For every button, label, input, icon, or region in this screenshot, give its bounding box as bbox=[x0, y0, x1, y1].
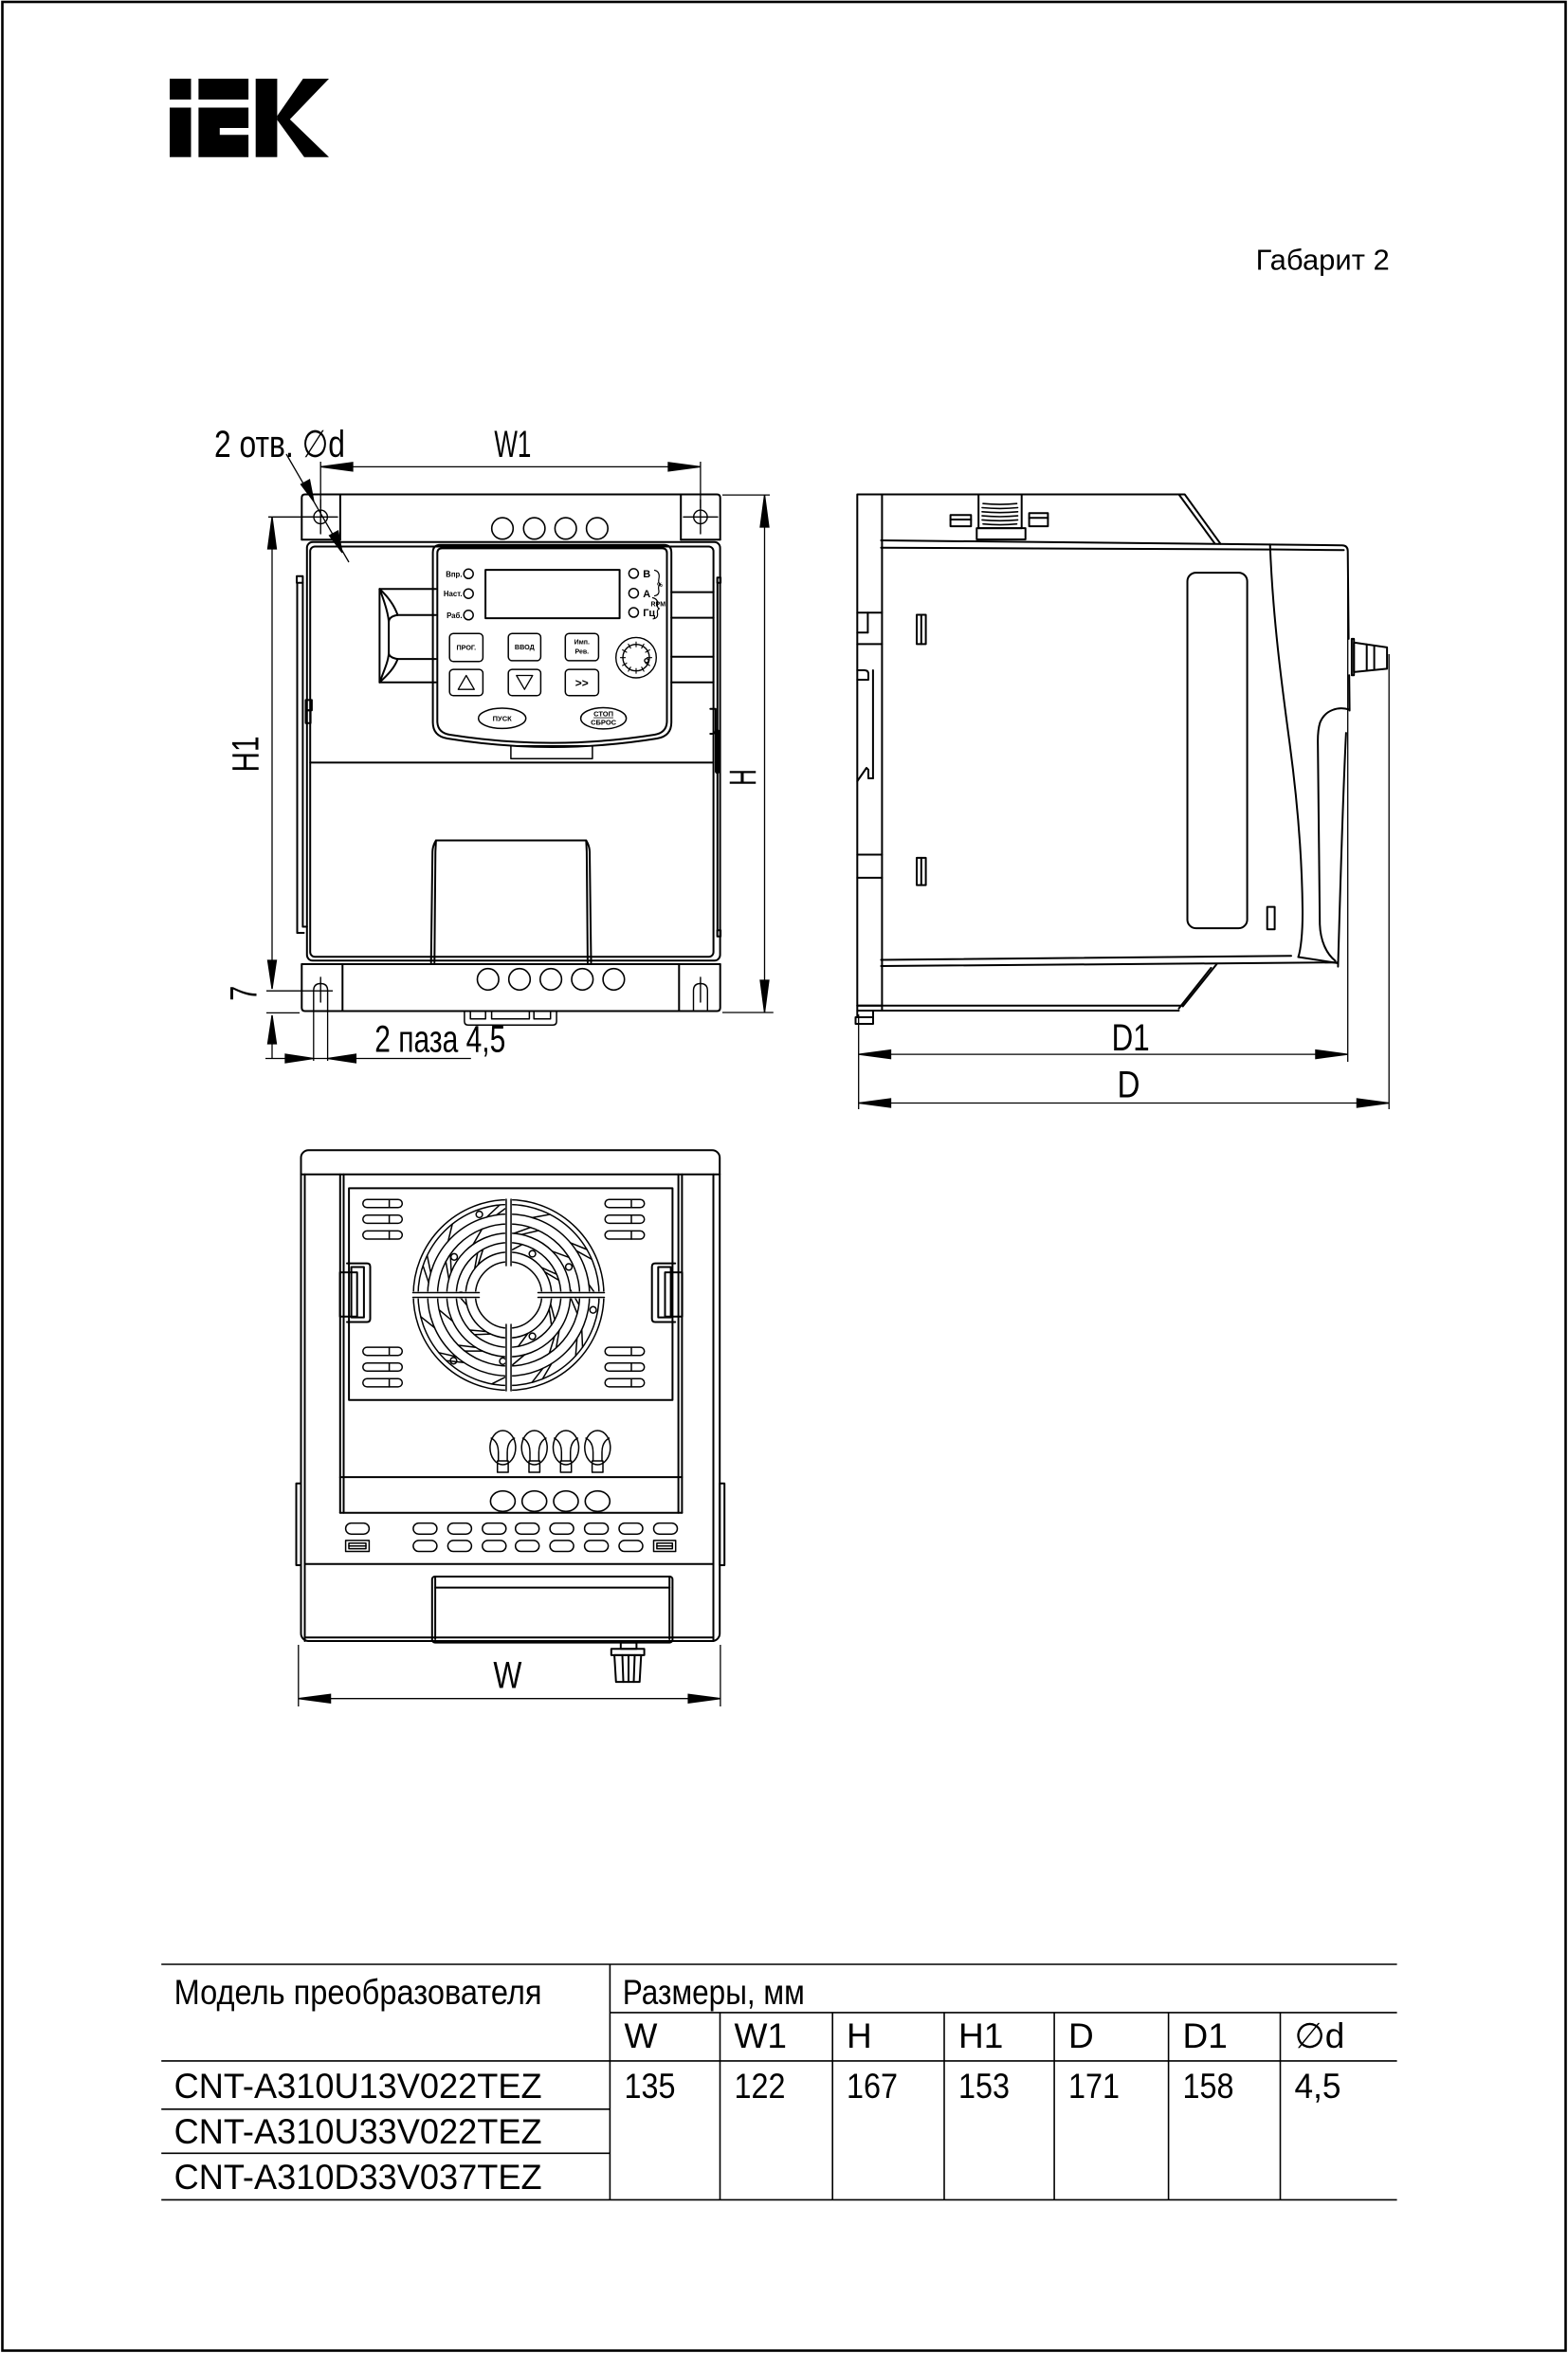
svg-text:Размеры, мм: Размеры, мм bbox=[623, 1973, 805, 2012]
svg-text:171: 171 bbox=[1068, 2067, 1120, 2106]
svg-text:W: W bbox=[493, 1655, 521, 1697]
svg-text:122: 122 bbox=[735, 2067, 786, 2106]
svg-text:∅d: ∅d bbox=[1295, 2016, 1345, 2055]
svg-text:H: H bbox=[722, 769, 764, 786]
svg-text:135: 135 bbox=[625, 2067, 676, 2106]
svg-text:D1: D1 bbox=[1112, 1017, 1150, 1059]
svg-text:2 отв. ∅d: 2 отв. ∅d bbox=[214, 424, 345, 465]
svg-text:167: 167 bbox=[847, 2067, 898, 2106]
svg-text:H1: H1 bbox=[226, 737, 267, 773]
svg-text:А: А bbox=[643, 589, 650, 600]
svg-text:ПРОГ.: ПРОГ. bbox=[456, 644, 476, 652]
svg-text:D: D bbox=[1068, 2016, 1094, 2055]
svg-text:153: 153 bbox=[958, 2067, 1010, 2106]
svg-text:В: В bbox=[643, 569, 650, 580]
svg-text:Наст.: Наст. bbox=[444, 590, 463, 598]
svg-text:%: % bbox=[657, 582, 663, 589]
svg-text:W: W bbox=[625, 2016, 658, 2055]
svg-text:D1: D1 bbox=[1183, 2016, 1228, 2055]
svg-text:H1: H1 bbox=[958, 2016, 1003, 2055]
svg-text:4,5: 4,5 bbox=[1295, 2067, 1341, 2106]
svg-text:CNT-A310U13V022TEZ: CNT-A310U13V022TEZ bbox=[174, 2067, 542, 2106]
svg-text:ВВОД: ВВОД bbox=[515, 643, 535, 651]
svg-text:7: 7 bbox=[223, 986, 264, 1001]
svg-text:Габарит 2: Габарит 2 bbox=[1256, 244, 1390, 277]
svg-text:RPM: RPM bbox=[651, 602, 666, 609]
svg-text:Рев.: Рев. bbox=[574, 648, 589, 655]
svg-text:D: D bbox=[1118, 1065, 1140, 1106]
svg-text:Гц: Гц bbox=[643, 608, 655, 619]
svg-text:СТОП: СТОП bbox=[593, 710, 613, 719]
svg-text:Имп.: Имп. bbox=[574, 640, 590, 647]
svg-text:W1: W1 bbox=[494, 424, 531, 465]
svg-text:W1: W1 bbox=[735, 2016, 788, 2055]
svg-text:Модель преобразователя: Модель преобразователя bbox=[174, 1973, 542, 2012]
svg-text:158: 158 bbox=[1183, 2067, 1234, 2106]
svg-text:H: H bbox=[847, 2016, 872, 2055]
svg-text:Раб.: Раб. bbox=[447, 611, 462, 620]
svg-text:ПУСК: ПУСК bbox=[493, 715, 512, 723]
svg-text:>>: >> bbox=[575, 676, 589, 689]
svg-text:СБРОС: СБРОС bbox=[591, 719, 617, 727]
svg-text:Впр.: Впр. bbox=[446, 570, 462, 578]
svg-text:CNT-A310U33V022TEZ: CNT-A310U33V022TEZ bbox=[174, 2112, 542, 2151]
svg-text:2 паза 4,5: 2 паза 4,5 bbox=[374, 1019, 505, 1061]
svg-text:CNT-A310D33V037TEZ: CNT-A310D33V037TEZ bbox=[174, 2158, 542, 2197]
